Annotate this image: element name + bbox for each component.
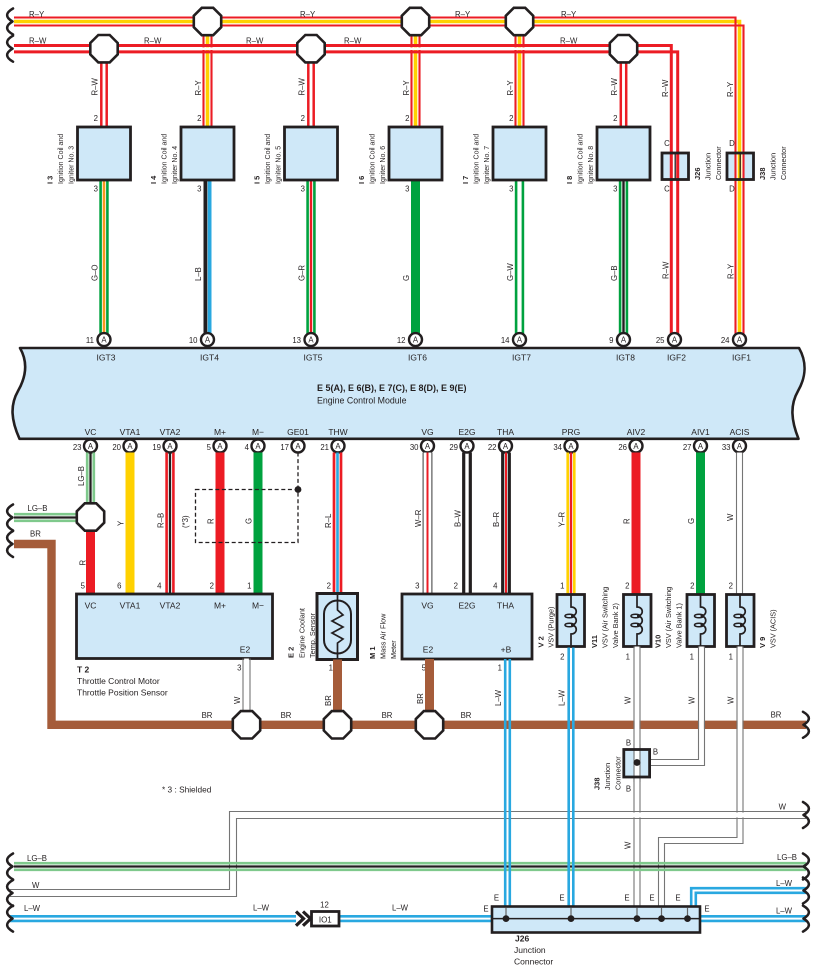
svg-text:R–Y: R–Y [29,10,45,19]
svg-text:BR: BR [382,711,393,720]
svg-text:IGT7: IGT7 [512,353,531,363]
svg-text:BR: BR [771,711,782,720]
svg-text:ACIS: ACIS [730,427,750,437]
svg-text:THA: THA [497,601,514,611]
svg-text:B–R: B–R [492,511,501,527]
svg-text:G: G [402,275,411,281]
svg-text:14: 14 [501,336,510,345]
svg-text:Junction: Junction [603,763,612,790]
svg-text:1: 1 [729,653,733,662]
svg-text:3: 3 [415,582,419,591]
svg-text:A: A [621,335,627,344]
svg-text:A: A [295,442,301,451]
svg-text:2: 2 [509,114,513,123]
svg-text:I 4: I 4 [149,175,158,184]
svg-text:J38: J38 [758,167,767,180]
svg-text:3: 3 [94,185,98,194]
svg-text:34: 34 [553,443,562,452]
svg-text:3: 3 [197,185,201,194]
svg-text:I 8: I 8 [565,176,574,184]
svg-text:Meter: Meter [389,640,398,659]
svg-text:A: A [88,442,94,451]
svg-text:27: 27 [683,443,692,452]
svg-text:Ignition Coil and: Ignition Coil and [578,134,585,184]
svg-text:A: A [464,442,470,451]
svg-text:IGT6: IGT6 [408,353,427,363]
svg-text:M+: M+ [214,427,226,437]
svg-text:19: 19 [152,443,161,452]
svg-text:13: 13 [292,336,301,345]
svg-text:G–O: G–O [91,265,100,281]
svg-text:2: 2 [301,114,305,123]
svg-text:E2: E2 [240,645,251,655]
svg-text:B–W: B–W [454,509,463,527]
svg-text:THW: THW [328,427,347,437]
svg-text:30: 30 [410,443,419,452]
svg-text:A: A [308,335,314,344]
svg-text:A: A [503,442,509,451]
svg-text:E: E [559,894,564,903]
svg-text:VSV (Air Switching: VSV (Air Switching [664,587,673,648]
svg-text:1: 1 [690,653,694,662]
svg-text:Ignition Coil and: Ignition Coil and [474,134,481,184]
svg-text:22: 22 [488,443,497,452]
svg-text:G–R: G–R [298,265,307,281]
svg-text:M 1: M 1 [368,646,377,659]
svg-text:1: 1 [247,582,251,591]
svg-text:R: R [79,560,88,566]
svg-text:9: 9 [609,336,613,345]
svg-text:BR: BR [202,711,213,720]
svg-text:R–Y: R–Y [194,80,203,96]
svg-text:IGT3: IGT3 [97,353,116,363]
svg-text:W: W [32,881,40,890]
svg-text:G–B: G–B [610,265,619,281]
svg-text:33: 33 [722,443,731,452]
svg-text:A: A [413,335,419,344]
svg-text:11: 11 [86,336,94,345]
svg-text:VG: VG [421,601,433,611]
svg-text:E: E [483,905,488,914]
svg-text:+B: +B [501,645,512,655]
svg-text:LG–B: LG–B [28,504,48,513]
svg-text:R–W: R–W [91,78,100,96]
svg-text:R: R [207,518,216,524]
svg-text:R–Y: R–Y [726,81,735,97]
svg-text:A: A [425,442,431,451]
svg-text:R–W: R–W [144,37,162,46]
svg-text:L–B: L–B [194,267,203,281]
svg-text:2: 2 [405,114,409,123]
svg-text:J26: J26 [693,167,702,180]
svg-text:Y–R: Y–R [558,511,567,527]
svg-text:Connector: Connector [714,146,723,180]
svg-text:B: B [653,748,658,757]
svg-text:VG: VG [421,427,433,437]
svg-text:BR: BR [324,695,333,706]
svg-text:26: 26 [618,443,627,452]
svg-text:R–W: R–W [298,78,307,96]
svg-text:E: E [494,894,499,903]
svg-text:I 5: I 5 [253,176,262,184]
svg-text:W–R: W–R [414,509,423,527]
svg-text:VTA2: VTA2 [160,427,181,437]
svg-text:A: A [167,442,173,451]
svg-text:M−: M− [252,427,264,437]
svg-text:3: 3 [301,185,305,194]
svg-text:E: E [675,894,680,903]
svg-text:Igniter No. 3: Igniter No. 3 [69,146,76,184]
svg-text:IGF1: IGF1 [732,353,751,363]
svg-text:2: 2 [327,582,331,591]
svg-text:A: A [255,442,261,451]
svg-text:R–W: R–W [610,78,619,96]
svg-text:W: W [233,696,242,704]
svg-text:I 7: I 7 [461,176,470,184]
svg-text:D: D [729,139,735,148]
svg-text:W: W [779,803,787,812]
svg-text:A: A [217,442,223,451]
svg-text:LG–B: LG–B [27,854,47,863]
svg-text:25: 25 [656,336,665,345]
svg-text:V10: V10 [654,635,663,648]
svg-text:Igniter No. 5: Igniter No. 5 [276,146,283,184]
svg-text:Connector: Connector [779,146,788,180]
svg-text:Igniter No. 6: Igniter No. 6 [380,146,387,184]
svg-text:BR: BR [281,711,292,720]
svg-text:Temp. Sensor: Temp. Sensor [308,612,317,658]
svg-text:W: W [726,513,735,521]
svg-text:Y: Y [117,520,126,526]
svg-text:L–W: L–W [253,904,270,913]
svg-text:A: A [737,442,743,451]
svg-text:AIV1: AIV1 [691,427,710,437]
svg-text:1: 1 [626,653,630,662]
svg-text:R–Y: R–Y [300,10,316,19]
svg-text:E2: E2 [423,645,434,655]
svg-text:L–W: L–W [494,689,503,706]
svg-text:R–W: R–W [560,37,578,46]
svg-text:AIV2: AIV2 [627,427,646,437]
svg-text:M−: M− [252,601,264,611]
svg-text:VSV (ACIS): VSV (ACIS) [769,609,778,648]
svg-text:L–W: L–W [776,907,793,916]
svg-text:A: A [517,335,523,344]
svg-text:IGT5: IGT5 [304,353,323,363]
svg-text:V 9: V 9 [758,637,767,648]
svg-text:2: 2 [197,114,201,123]
svg-text:Valve Bank 2): Valve Bank 2) [611,603,620,648]
svg-text:A: A [335,442,341,451]
svg-text:THA: THA [497,427,514,437]
svg-text:J38: J38 [593,777,602,790]
svg-text:G: G [687,518,696,524]
svg-text:E: E [704,905,709,914]
svg-text:IGF2: IGF2 [667,353,686,363]
svg-text:D: D [729,185,735,194]
svg-text:2: 2 [613,114,617,123]
svg-text:C: C [664,139,670,148]
svg-text:Igniter No. 8: Igniter No. 8 [588,146,595,184]
svg-text:M+: M+ [214,601,226,611]
svg-text:VTA2: VTA2 [160,601,181,611]
svg-text:VC: VC [85,427,97,437]
svg-text:1: 1 [329,664,333,673]
svg-text:2: 2 [690,582,694,591]
svg-text:A: A [672,335,678,344]
svg-text:3: 3 [509,185,513,194]
svg-text:6: 6 [117,582,121,591]
svg-text:VTA1: VTA1 [120,601,141,611]
svg-text:IGT8: IGT8 [616,353,635,363]
svg-text:5: 5 [207,443,212,452]
svg-text:Engine Coolant: Engine Coolant [298,608,307,658]
svg-text:L–W: L–W [392,904,409,913]
svg-text:R–W: R–W [661,79,670,97]
svg-text:2: 2 [729,582,733,591]
svg-text:Junction: Junction [704,153,713,180]
svg-text:29: 29 [449,443,458,452]
svg-text:R–Y: R–Y [402,80,411,96]
svg-text:IO1: IO1 [319,916,332,925]
svg-text:E2G: E2G [458,427,475,437]
svg-text:A: A [205,335,211,344]
svg-text:Ignition Coil and: Ignition Coil and [265,134,272,184]
svg-text:Ignition Coil and: Ignition Coil and [370,134,377,184]
svg-text:BR: BR [30,530,41,539]
svg-text:Valve Bank 1): Valve Bank 1) [675,603,684,648]
svg-text:Igniter No. 7: Igniter No. 7 [484,146,491,184]
svg-text:17: 17 [280,443,289,452]
svg-text:I 3: I 3 [46,176,55,184]
svg-text:Ignition Coil and: Ignition Coil and [162,134,169,184]
svg-text:Ignition Coil and: Ignition Coil and [58,134,65,184]
svg-text:(*3): (*3) [181,515,190,528]
svg-text:R–Y: R–Y [455,10,471,19]
svg-text:C: C [664,185,670,194]
svg-text:V 2: V 2 [537,636,546,647]
svg-text:1: 1 [560,582,564,591]
svg-text:10: 10 [189,336,198,345]
svg-text:1: 1 [498,664,502,673]
svg-text:2: 2 [210,582,214,591]
svg-text:E: E [624,894,629,903]
svg-text:4: 4 [245,443,250,452]
svg-text:BR: BR [416,693,425,704]
svg-text:L–W: L–W [558,689,567,706]
svg-text:I 6: I 6 [357,176,366,184]
svg-text:Engine Control Module: Engine Control Module [317,396,407,406]
svg-text:V11: V11 [590,635,599,648]
svg-text:2: 2 [560,653,564,662]
svg-text:4: 4 [157,582,162,591]
svg-text:E 5(A), E 6(B), E 7(C), E 8(D): E 5(A), E 6(B), E 7(C), E 8(D), E 9(E) [317,383,467,393]
svg-text:R–Y: R–Y [561,10,577,19]
svg-text:Throttle Position Sensor: Throttle Position Sensor [77,688,168,698]
svg-text:VC: VC [85,601,97,611]
svg-text:B: B [626,739,631,748]
svg-text:Connector: Connector [614,756,623,790]
svg-text:A: A [698,442,704,451]
svg-text:24: 24 [721,336,730,345]
svg-text:PRG: PRG [562,427,580,437]
svg-text:Igniter No. 4: Igniter No. 4 [172,146,179,184]
svg-text:IGT4: IGT4 [200,353,219,363]
svg-text:R–L: R–L [324,513,333,528]
svg-text:5: 5 [81,582,86,591]
svg-text:B: B [626,785,631,794]
svg-text:GE01: GE01 [287,427,309,437]
svg-text:VSV (Air Switching: VSV (Air Switching [601,587,610,648]
svg-text:12: 12 [397,336,406,345]
svg-text:G: G [245,518,254,524]
svg-text:W: W [624,841,633,849]
svg-text:3: 3 [405,185,409,194]
svg-text:Connector: Connector [514,957,553,967]
svg-text:* 3 : Shielded: * 3 : Shielded [162,785,212,795]
svg-text:VSV (Purge): VSV (Purge) [547,607,556,648]
svg-text:3: 3 [613,185,617,194]
svg-text:W: W [624,696,633,704]
svg-text:LG–B: LG–B [77,466,86,486]
svg-text:E: E [649,894,654,903]
svg-text:W: W [688,696,697,704]
svg-text:Junction: Junction [769,153,778,180]
svg-text:R–Y: R–Y [506,80,515,96]
svg-text:R–Y: R–Y [727,263,736,279]
svg-text:23: 23 [73,443,82,452]
svg-text:A: A [633,442,639,451]
svg-text:A: A [568,442,574,451]
svg-text:E 2: E 2 [287,647,296,658]
svg-text:G–W: G–W [506,263,515,281]
svg-text:A: A [127,442,133,451]
svg-text:R–B: R–B [157,513,166,528]
svg-text:2: 2 [625,582,629,591]
svg-text:A: A [101,335,107,344]
svg-text:BR: BR [461,711,472,720]
svg-text:Junction: Junction [514,945,546,955]
svg-text:Throttle Control Motor: Throttle Control Motor [77,676,160,686]
svg-text:W: W [727,696,736,704]
svg-text:LG–B: LG–B [777,853,797,862]
svg-text:R–W: R–W [29,37,47,46]
svg-text:12: 12 [320,901,329,910]
svg-text:L–W: L–W [24,904,41,913]
svg-text:R–W: R–W [662,261,671,279]
svg-text:R–W: R–W [344,37,362,46]
svg-text:J26: J26 [515,934,529,944]
svg-text:A: A [737,335,743,344]
svg-text:3: 3 [237,664,241,673]
svg-text:R: R [623,518,632,524]
svg-text:2: 2 [454,582,458,591]
svg-text:Mass Air Flow: Mass Air Flow [379,613,388,659]
svg-text:2: 2 [94,114,98,123]
svg-text:T 2: T 2 [77,665,90,675]
svg-text:R–W: R–W [246,37,264,46]
svg-text:4: 4 [493,582,498,591]
svg-text:E2G: E2G [458,601,475,611]
svg-text:20: 20 [112,443,121,452]
svg-text:21: 21 [320,443,329,452]
svg-text:VTA1: VTA1 [120,427,141,437]
svg-text:L–W: L–W [776,879,793,888]
